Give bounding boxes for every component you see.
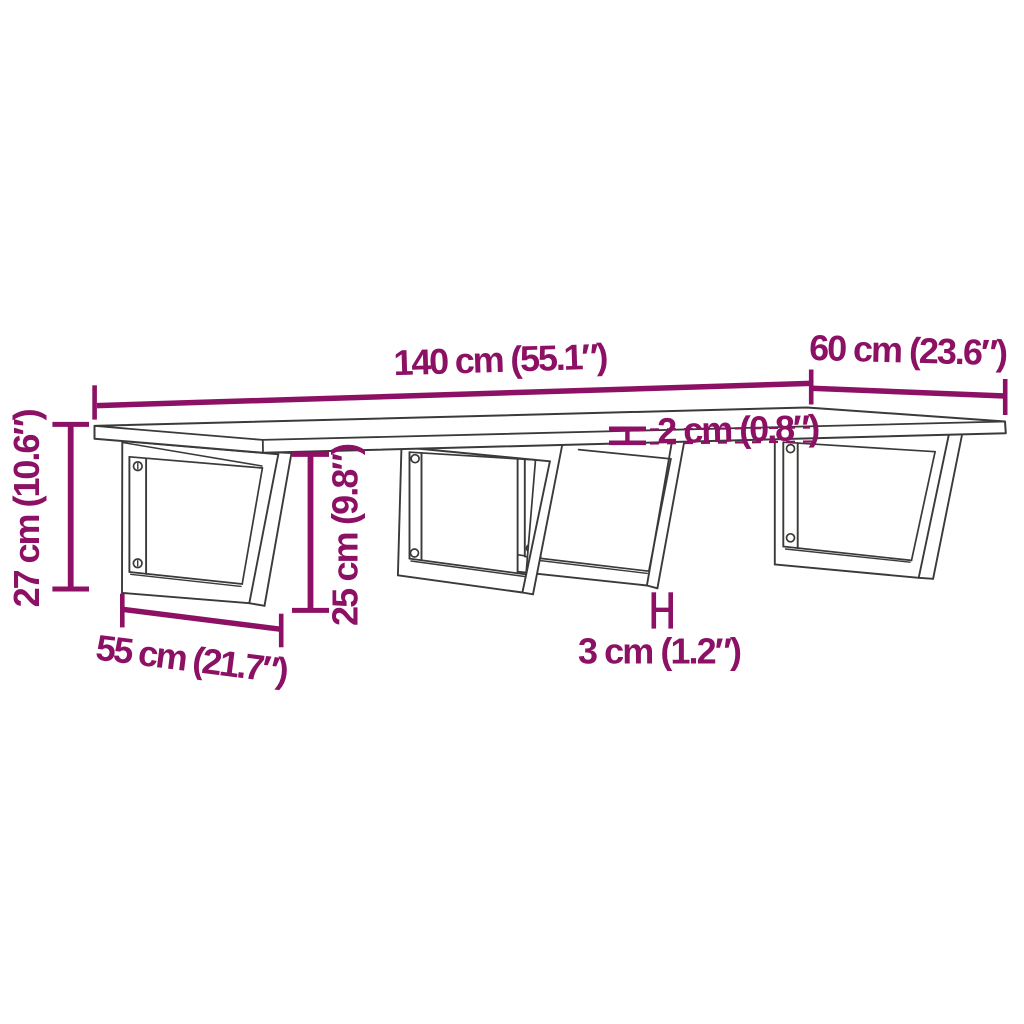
svg-text:25 cm (9.8″): 25 cm (9.8″): [325, 443, 366, 626]
svg-text:55 cm (21.7″): 55 cm (21.7″): [94, 627, 292, 692]
svg-text:60 cm (23.6″): 60 cm (23.6″): [809, 327, 1009, 373]
svg-text:2 cm (0.8″): 2 cm (0.8″): [657, 407, 821, 451]
svg-text:27 cm (10.6″): 27 cm (10.6″): [6, 408, 47, 607]
svg-text:140 cm (55.1″): 140 cm (55.1″): [393, 336, 609, 384]
svg-text:3 cm (1.2″): 3 cm (1.2″): [578, 631, 742, 672]
